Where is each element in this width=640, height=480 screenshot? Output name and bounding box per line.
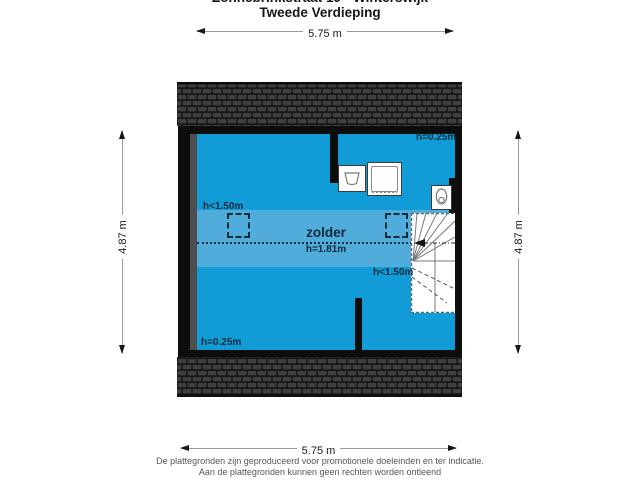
arrow-up-icon: [515, 130, 521, 139]
disclaimer-line-2: Aan de plattegronden kunnen geen rechten…: [0, 467, 640, 477]
toilet-fixture: [431, 185, 452, 210]
wall-bottom: [178, 350, 462, 357]
arrow-down-icon: [119, 345, 125, 354]
floorplan-page: Zonnebrinkstraat 19 - Winterswijk Tweede…: [0, 0, 640, 480]
dimension-left: 4.87 m: [122, 131, 123, 353]
roof-band-top: [177, 84, 462, 126]
washer-door-detail: [372, 191, 397, 193]
dimension-left-label: 4.87 m: [116, 215, 128, 259]
wall-right: [455, 126, 462, 357]
knee-wall-strip: [190, 134, 197, 350]
dimension-top: 5.75 m: [197, 31, 453, 32]
wall-left: [178, 126, 190, 357]
toilet-icon: [432, 186, 451, 209]
room-label: zolder: [197, 225, 455, 240]
arrow-up-icon: [119, 130, 125, 139]
dimension-top-label: 5.75 m: [303, 28, 347, 40]
washing-machine-icon: [371, 166, 398, 192]
roof-band-bottom: [177, 357, 462, 395]
arrow-down-icon: [515, 345, 521, 354]
height-label-band-left: h<1.50m: [203, 201, 243, 212]
sink-icon: [339, 166, 365, 191]
sink-fixture: [338, 165, 366, 192]
ridge-height-label: h=1.81m: [197, 244, 455, 255]
dimension-right-label: 4.87 m: [512, 215, 524, 259]
dimension-right: 4.87 m: [518, 131, 519, 353]
interior-wall-bottom: [355, 298, 362, 357]
floor-title: Tweede Verdieping: [0, 5, 640, 20]
interior-wall-top: [330, 134, 338, 183]
height-label-bottom-left: h=0.25m: [201, 337, 241, 348]
height-label-top-right: h=0.25m: [416, 132, 456, 143]
disclaimer-line-1: De plattegronden zijn geproduceerd voor …: [0, 456, 640, 466]
dimension-bottom: 5.75 m: [181, 448, 456, 449]
washing-machine-fixture: [367, 162, 402, 196]
height-label-band-right: h<1.50m: [373, 267, 413, 278]
